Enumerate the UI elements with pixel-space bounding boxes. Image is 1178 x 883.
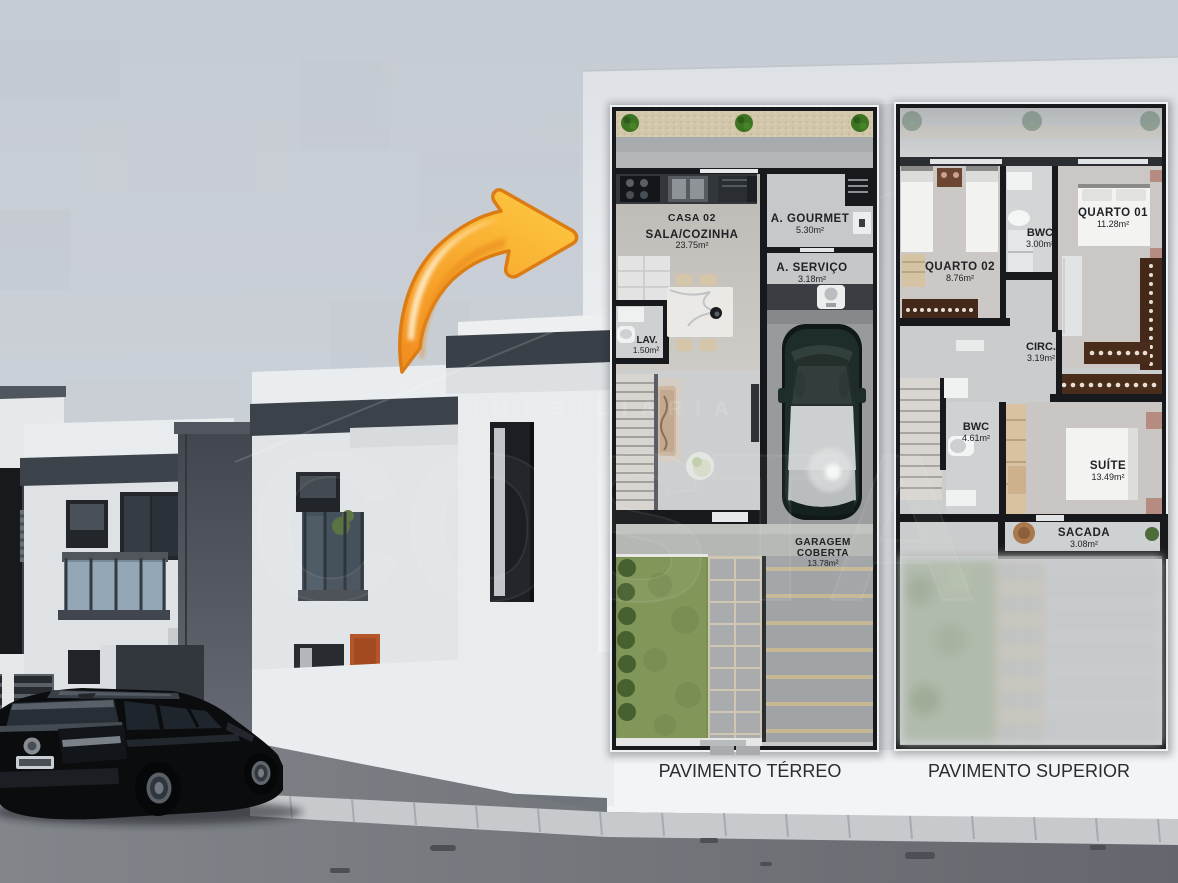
svg-text:23.75m²: 23.75m² — [675, 240, 708, 250]
svg-text:11.28m²: 11.28m² — [1097, 219, 1129, 229]
svg-text:A. GOURMET: A. GOURMET — [771, 213, 849, 225]
svg-text:A. SERVIÇO: A. SERVIÇO — [776, 262, 847, 274]
svg-text:PAVIMENTO TÉRREO: PAVIMENTO TÉRREO — [659, 761, 842, 781]
svg-text:CIRC.: CIRC. — [1026, 341, 1056, 353]
svg-text:BWC: BWC — [1027, 227, 1053, 239]
svg-text:1.50m²: 1.50m² — [633, 345, 660, 355]
svg-text:SUÍTE: SUÍTE — [1090, 459, 1126, 472]
svg-text:13.49m²: 13.49m² — [1091, 472, 1124, 482]
svg-text:8.76m²: 8.76m² — [946, 273, 974, 283]
svg-text:SACADA: SACADA — [1058, 527, 1110, 539]
svg-text:QUARTO 01: QUARTO 01 — [1078, 207, 1148, 219]
svg-text:COSTA: COSTA — [250, 410, 979, 645]
svg-text:3.08m²: 3.08m² — [1070, 539, 1098, 549]
svg-text:3.00m²: 3.00m² — [1026, 239, 1054, 249]
svg-text:QUARTO 02: QUARTO 02 — [925, 261, 995, 273]
svg-text:CASA 02: CASA 02 — [668, 212, 716, 224]
svg-text:3.18m²: 3.18m² — [798, 274, 826, 284]
svg-text:3.19m²: 3.19m² — [1027, 353, 1055, 363]
svg-text:PAVIMENTO SUPERIOR: PAVIMENTO SUPERIOR — [928, 761, 1130, 781]
svg-text:5.30m²: 5.30m² — [796, 225, 824, 235]
